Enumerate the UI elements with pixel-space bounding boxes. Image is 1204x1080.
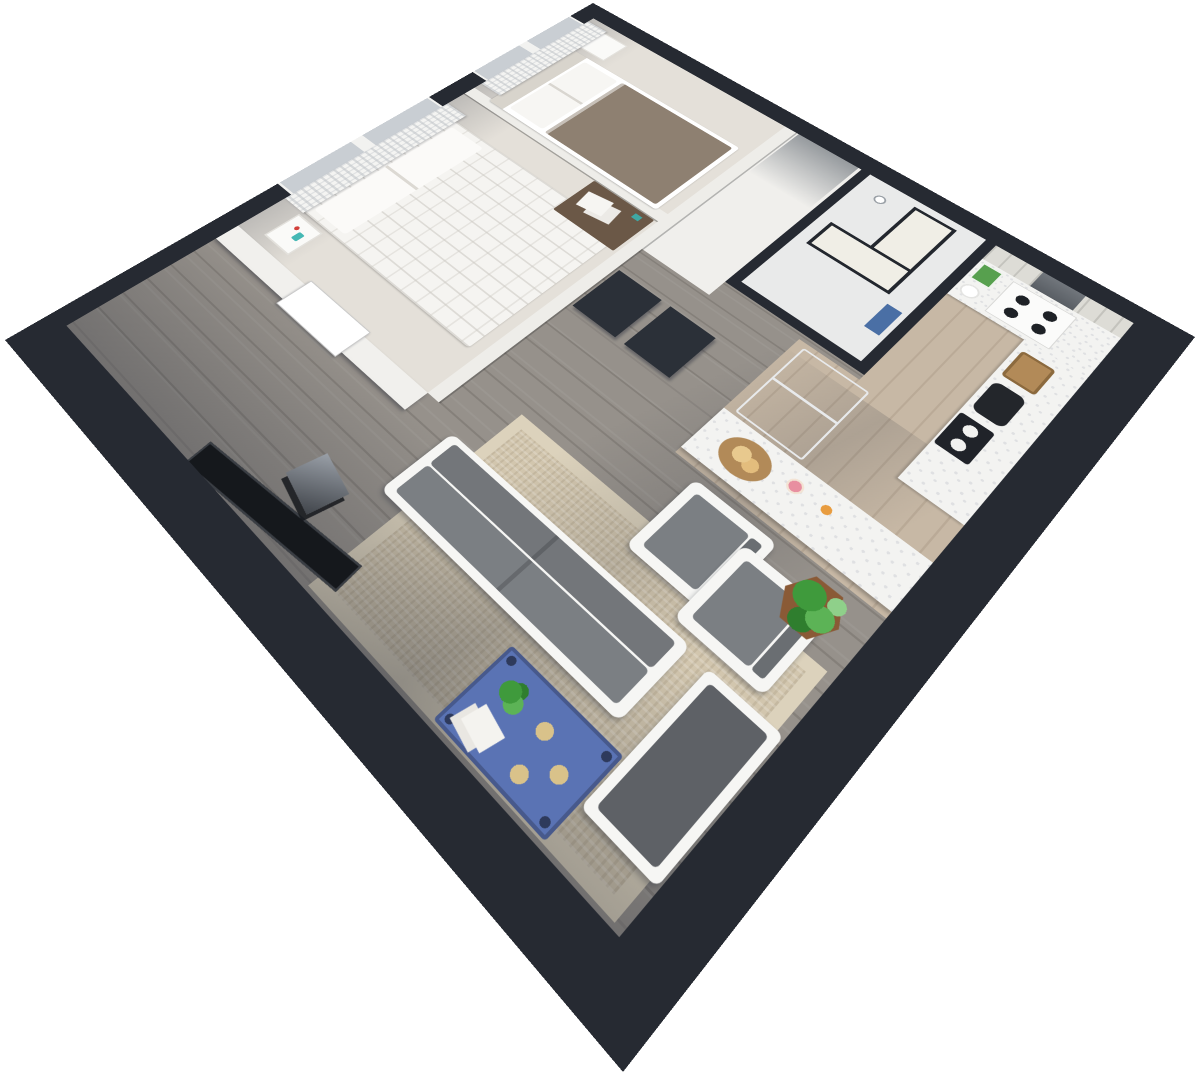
- apartment-floor-plan: [5, 3, 1195, 1072]
- floor-plan-stage: [0, 0, 1204, 1080]
